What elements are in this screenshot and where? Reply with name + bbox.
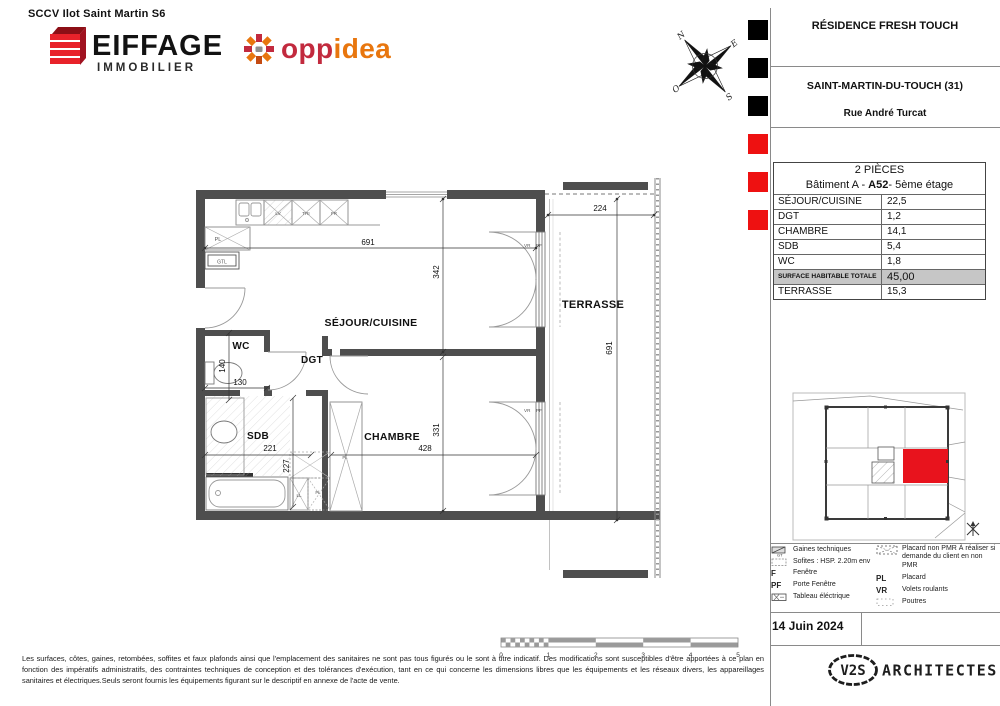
architect-name: ARCHITECTES [882, 662, 996, 680]
soffites-icon [771, 558, 793, 567]
closet-label-pl: PL [215, 237, 222, 243]
svg-text:GT: GT [777, 553, 783, 558]
floor-plan-sheet: { "colors": { "accent_red": "#ee1111", "… [0, 0, 1000, 706]
window-tag-pf-2: PF [536, 408, 542, 413]
dim-chambre-width: 428 [418, 444, 432, 453]
compass-e: E [728, 38, 740, 51]
chambre-closet-label: Pl. [342, 455, 347, 460]
window-tag-vr-2: VR [524, 408, 531, 413]
legend-left-column: GT Gaines techniques Sofites : HSP. 2.20… [771, 546, 871, 602]
volets-roulants-abbr: VR [876, 586, 902, 595]
room-label-wc: WC [232, 341, 249, 352]
key-plan-unit-highlight [903, 449, 948, 483]
key-plan-compass-icon [967, 521, 979, 536]
architect-logo: V2S ARCHITECTES [826, 650, 996, 692]
appliance-label-fr: FR [331, 211, 338, 216]
room-label-sejour: SÉJOUR/CUISINE [325, 316, 418, 329]
legend-item: VR Volets roulants [876, 586, 998, 595]
bathtub [206, 477, 288, 510]
kitchen-window [386, 190, 447, 199]
key-plan [793, 393, 979, 540]
fenetre-abbr: F [771, 569, 793, 578]
date: 14 Juin 2024 [772, 619, 843, 633]
compass-rose: N E S O [647, 7, 765, 126]
dim-sejour-height: 342 [432, 265, 441, 279]
legend-item: PL Placard [876, 574, 998, 583]
dim-top-width: 691 [361, 238, 375, 247]
dim-terrace-width: 224 [593, 204, 607, 213]
poutres-icon [876, 598, 902, 607]
appliance-label-tri: TRI [302, 211, 309, 216]
chambre-french-window [536, 402, 545, 495]
dim-wc-height: 140 [218, 359, 227, 373]
gtl-label: GTL [217, 260, 227, 266]
legend-item: Sofites : HSP. 2.20m env [771, 558, 871, 567]
legend-item: PF Porte Fenêtre [771, 581, 871, 590]
room-label-dgt: DGT [301, 355, 323, 366]
compass-s: S [724, 92, 735, 104]
room-label-sdb: SDB [247, 431, 269, 442]
entry-closet [205, 227, 250, 250]
legend-item: GT Gaines techniques [771, 546, 871, 557]
legend-item: F Fenêtre [771, 569, 871, 578]
legend-right-column: Placard non PMR À réaliser si demande du… [876, 545, 998, 607]
legend-item: Poutres [876, 598, 998, 607]
closet-label-pl-small: Pl. [315, 490, 320, 495]
room-label-chambre: CHAMBRE [364, 431, 420, 443]
dim-terrace-height: 691 [605, 341, 614, 355]
tableau-electrique-icon [771, 593, 793, 602]
placard-abbr: PL [876, 574, 902, 583]
dim-wc-width: 130 [233, 378, 247, 387]
dim-chambre-height: 331 [432, 423, 441, 437]
window-tag-vr-1: VR [524, 243, 531, 248]
legend-item: Tableau éléctrique [771, 593, 871, 602]
architect-logo-mark: V2S [840, 663, 865, 679]
gaines-techniques-icon: GT [771, 546, 793, 557]
dim-sdb-width: 221 [263, 444, 277, 453]
porte-fenetre-abbr: PF [771, 581, 793, 590]
dim-sdb-height: 227 [282, 459, 291, 473]
disclaimer-text: Les surfaces, côtes, gaines, retombées, … [22, 653, 764, 686]
washer-label-ll: LL [296, 493, 302, 498]
legend-item: Placard non PMR À réaliser si demande du… [876, 545, 998, 570]
walls [196, 182, 660, 578]
room-label-terrasse: TERRASSE [562, 299, 624, 311]
placard-non-pmr-icon [876, 545, 902, 555]
